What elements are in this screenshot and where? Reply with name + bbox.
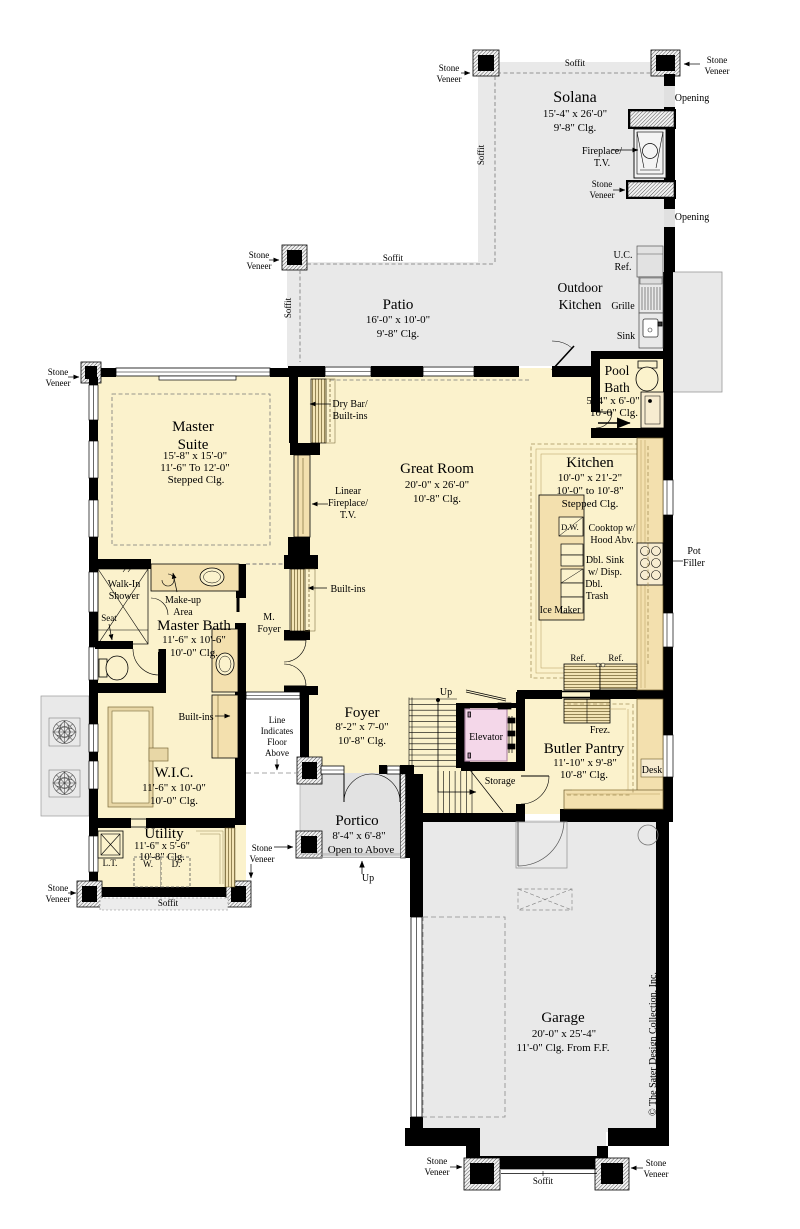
svg-text:10'-8" Clg.: 10'-8" Clg.: [338, 735, 386, 747]
svg-text:Soffit: Soffit: [158, 898, 179, 908]
svg-text:Filler: Filler: [683, 558, 705, 569]
svg-text:Cooktop w/: Cooktop w/: [589, 523, 636, 534]
svg-text:Soffit: Soffit: [533, 1176, 554, 1186]
svg-text:Stone: Stone: [48, 367, 69, 377]
svg-text:Stepped Clg.: Stepped Clg.: [168, 474, 225, 486]
svg-text:w/ Disp.: w/ Disp.: [588, 567, 622, 578]
svg-text:Stone: Stone: [427, 1156, 448, 1166]
svg-text:Ref.: Ref.: [615, 262, 632, 273]
svg-text:10'-8" Clg.: 10'-8" Clg.: [413, 493, 461, 505]
svg-text:Veneer: Veneer: [425, 1167, 450, 1177]
svg-text:Indicates: Indicates: [261, 726, 294, 736]
svg-text:Stone: Stone: [592, 179, 613, 189]
svg-text:Stone: Stone: [646, 1158, 667, 1168]
svg-text:Ref.: Ref.: [570, 653, 585, 663]
svg-text:W.I.C.: W.I.C.: [154, 765, 193, 781]
svg-text:20'-0" x 25'-4": 20'-0" x 25'-4": [532, 1028, 596, 1040]
svg-text:Ice Maker: Ice Maker: [540, 605, 581, 616]
svg-text:W.: W.: [143, 859, 153, 869]
svg-text:D.W.: D.W.: [561, 522, 579, 532]
svg-text:T.V.: T.V.: [594, 158, 610, 169]
svg-text:Up: Up: [440, 687, 452, 698]
svg-text:Ref.: Ref.: [608, 653, 623, 663]
svg-text:Foyer: Foyer: [345, 705, 380, 721]
svg-text:Veneer: Veneer: [590, 190, 615, 200]
svg-text:10'-0" Clg.: 10'-0" Clg.: [590, 407, 638, 419]
svg-text:Bath: Bath: [604, 380, 630, 395]
svg-text:Soffit: Soffit: [476, 144, 486, 165]
svg-text:Patio: Patio: [383, 297, 414, 313]
svg-text:© The Sater Design Collection,: © The Sater Design Collection, Inc.: [648, 972, 659, 1116]
svg-text:Built-ins: Built-ins: [178, 712, 213, 723]
svg-text:Butler Pantry: Butler Pantry: [544, 741, 625, 757]
svg-text:Opening: Opening: [675, 93, 709, 104]
svg-text:Veneer: Veneer: [247, 261, 272, 271]
svg-text:11'-6" x 5'-6": 11'-6" x 5'-6": [134, 841, 190, 852]
svg-text:11'-10" x 9'-8": 11'-10" x 9'-8": [553, 757, 617, 769]
svg-text:Stone: Stone: [249, 250, 270, 260]
svg-text:Fireplace/: Fireplace/: [582, 146, 622, 157]
svg-text:Linear: Linear: [335, 486, 362, 497]
svg-text:Desk: Desk: [642, 765, 663, 776]
svg-text:U.C.: U.C.: [614, 250, 633, 261]
svg-text:Garage: Garage: [541, 1010, 585, 1026]
svg-text:Utility: Utility: [144, 826, 184, 842]
svg-text:Veneer: Veneer: [705, 66, 730, 76]
svg-text:15'-8" x 15'-0": 15'-8" x 15'-0": [163, 450, 227, 462]
svg-text:Master Bath: Master Bath: [157, 618, 231, 634]
svg-text:Grille: Grille: [611, 301, 635, 312]
svg-text:Storage: Storage: [485, 776, 516, 787]
svg-text:Veneer: Veneer: [46, 378, 71, 388]
svg-text:Veneer: Veneer: [250, 854, 275, 864]
svg-text:Up: Up: [362, 873, 374, 884]
svg-text:Dry Bar/: Dry Bar/: [332, 399, 367, 410]
svg-text:D.: D.: [172, 859, 181, 869]
svg-text:Soffit: Soffit: [383, 253, 404, 263]
svg-text:Pool: Pool: [605, 363, 630, 378]
svg-text:16'-0" x 10'-0": 16'-0" x 10'-0": [366, 314, 430, 326]
svg-text:Area: Area: [173, 607, 193, 618]
svg-text:Stone: Stone: [439, 63, 460, 73]
svg-text:Floor: Floor: [267, 737, 287, 747]
svg-text:Veneer: Veneer: [46, 894, 71, 904]
svg-text:9'-8" Clg.: 9'-8" Clg.: [554, 122, 597, 134]
svg-text:Frez.: Frez.: [590, 725, 610, 736]
svg-text:Soffit: Soffit: [283, 297, 293, 318]
svg-text:Kitchen: Kitchen: [559, 297, 602, 312]
svg-text:Kitchen: Kitchen: [566, 455, 614, 471]
svg-text:15'-4" x 26'-0": 15'-4" x 26'-0": [543, 108, 607, 120]
svg-text:Dbl.: Dbl.: [585, 579, 603, 590]
svg-text:10'-0" Clg.: 10'-0" Clg.: [150, 795, 198, 807]
svg-text:L.T.: L.T.: [103, 858, 118, 868]
svg-text:Trash: Trash: [586, 591, 608, 602]
svg-text:Veneer: Veneer: [437, 74, 462, 84]
svg-text:11'-6" x 10'-0": 11'-6" x 10'-0": [142, 782, 206, 794]
svg-text:M.: M.: [263, 612, 274, 623]
svg-text:Foyer: Foyer: [257, 624, 281, 635]
svg-text:Pot: Pot: [687, 546, 701, 557]
svg-text:Outdoor: Outdoor: [558, 280, 604, 295]
svg-text:Seat: Seat: [101, 613, 117, 623]
svg-text:Stepped Clg.: Stepped Clg.: [562, 498, 619, 510]
svg-text:5'-4" x 6'-0": 5'-4" x 6'-0": [586, 395, 639, 407]
svg-text:Built-ins: Built-ins: [330, 584, 365, 595]
svg-text:Opening: Opening: [675, 212, 709, 223]
svg-text:Sink: Sink: [617, 331, 635, 342]
svg-text:Stone: Stone: [707, 55, 728, 65]
svg-text:Fireplace/: Fireplace/: [328, 498, 368, 509]
svg-text:Walk-In: Walk-In: [108, 579, 141, 590]
svg-text:Open to Above: Open to Above: [328, 844, 395, 856]
svg-text:Stone: Stone: [252, 843, 273, 853]
svg-text:Elevator: Elevator: [469, 732, 504, 743]
svg-text:11'-6" x 10'-6": 11'-6" x 10'-6": [162, 634, 226, 646]
svg-text:Portico: Portico: [335, 813, 378, 829]
svg-text:Shower: Shower: [109, 591, 140, 602]
svg-text:Great Room: Great Room: [400, 461, 474, 477]
svg-text:Solana: Solana: [553, 89, 597, 106]
svg-text:11'-6" To 12'-0": 11'-6" To 12'-0": [160, 462, 230, 474]
svg-text:Line: Line: [269, 715, 286, 725]
svg-text:10'-0" Clg.: 10'-0" Clg.: [170, 647, 218, 659]
svg-text:20'-0" x 26'-0": 20'-0" x 26'-0": [405, 479, 469, 491]
svg-text:Soffit: Soffit: [565, 58, 586, 68]
svg-text:Built-ins: Built-ins: [332, 411, 367, 422]
svg-text:8'-4" x 6'-8": 8'-4" x 6'-8": [332, 830, 385, 842]
svg-text:10'-0" x 21'-2": 10'-0" x 21'-2": [558, 472, 622, 484]
svg-text:Veneer: Veneer: [644, 1169, 669, 1179]
svg-text:8'-2" x 7'-0": 8'-2" x 7'-0": [335, 721, 388, 733]
svg-text:Master: Master: [172, 419, 214, 435]
svg-text:10'-0" to 10'-8": 10'-0" to 10'-8": [556, 485, 623, 497]
svg-text:Dbl. Sink: Dbl. Sink: [586, 555, 624, 566]
svg-text:T.V.: T.V.: [340, 510, 356, 521]
svg-text:Make-up: Make-up: [165, 595, 201, 606]
svg-text:11'-0" Clg. From F.F.: 11'-0" Clg. From F.F.: [517, 1042, 610, 1054]
svg-text:Stone: Stone: [48, 883, 69, 893]
svg-text:9'-8" Clg.: 9'-8" Clg.: [377, 328, 420, 340]
svg-text:10'-8" Clg.: 10'-8" Clg.: [560, 769, 608, 781]
svg-text:Above: Above: [265, 748, 289, 758]
svg-text:Hood Abv.: Hood Abv.: [590, 535, 633, 546]
